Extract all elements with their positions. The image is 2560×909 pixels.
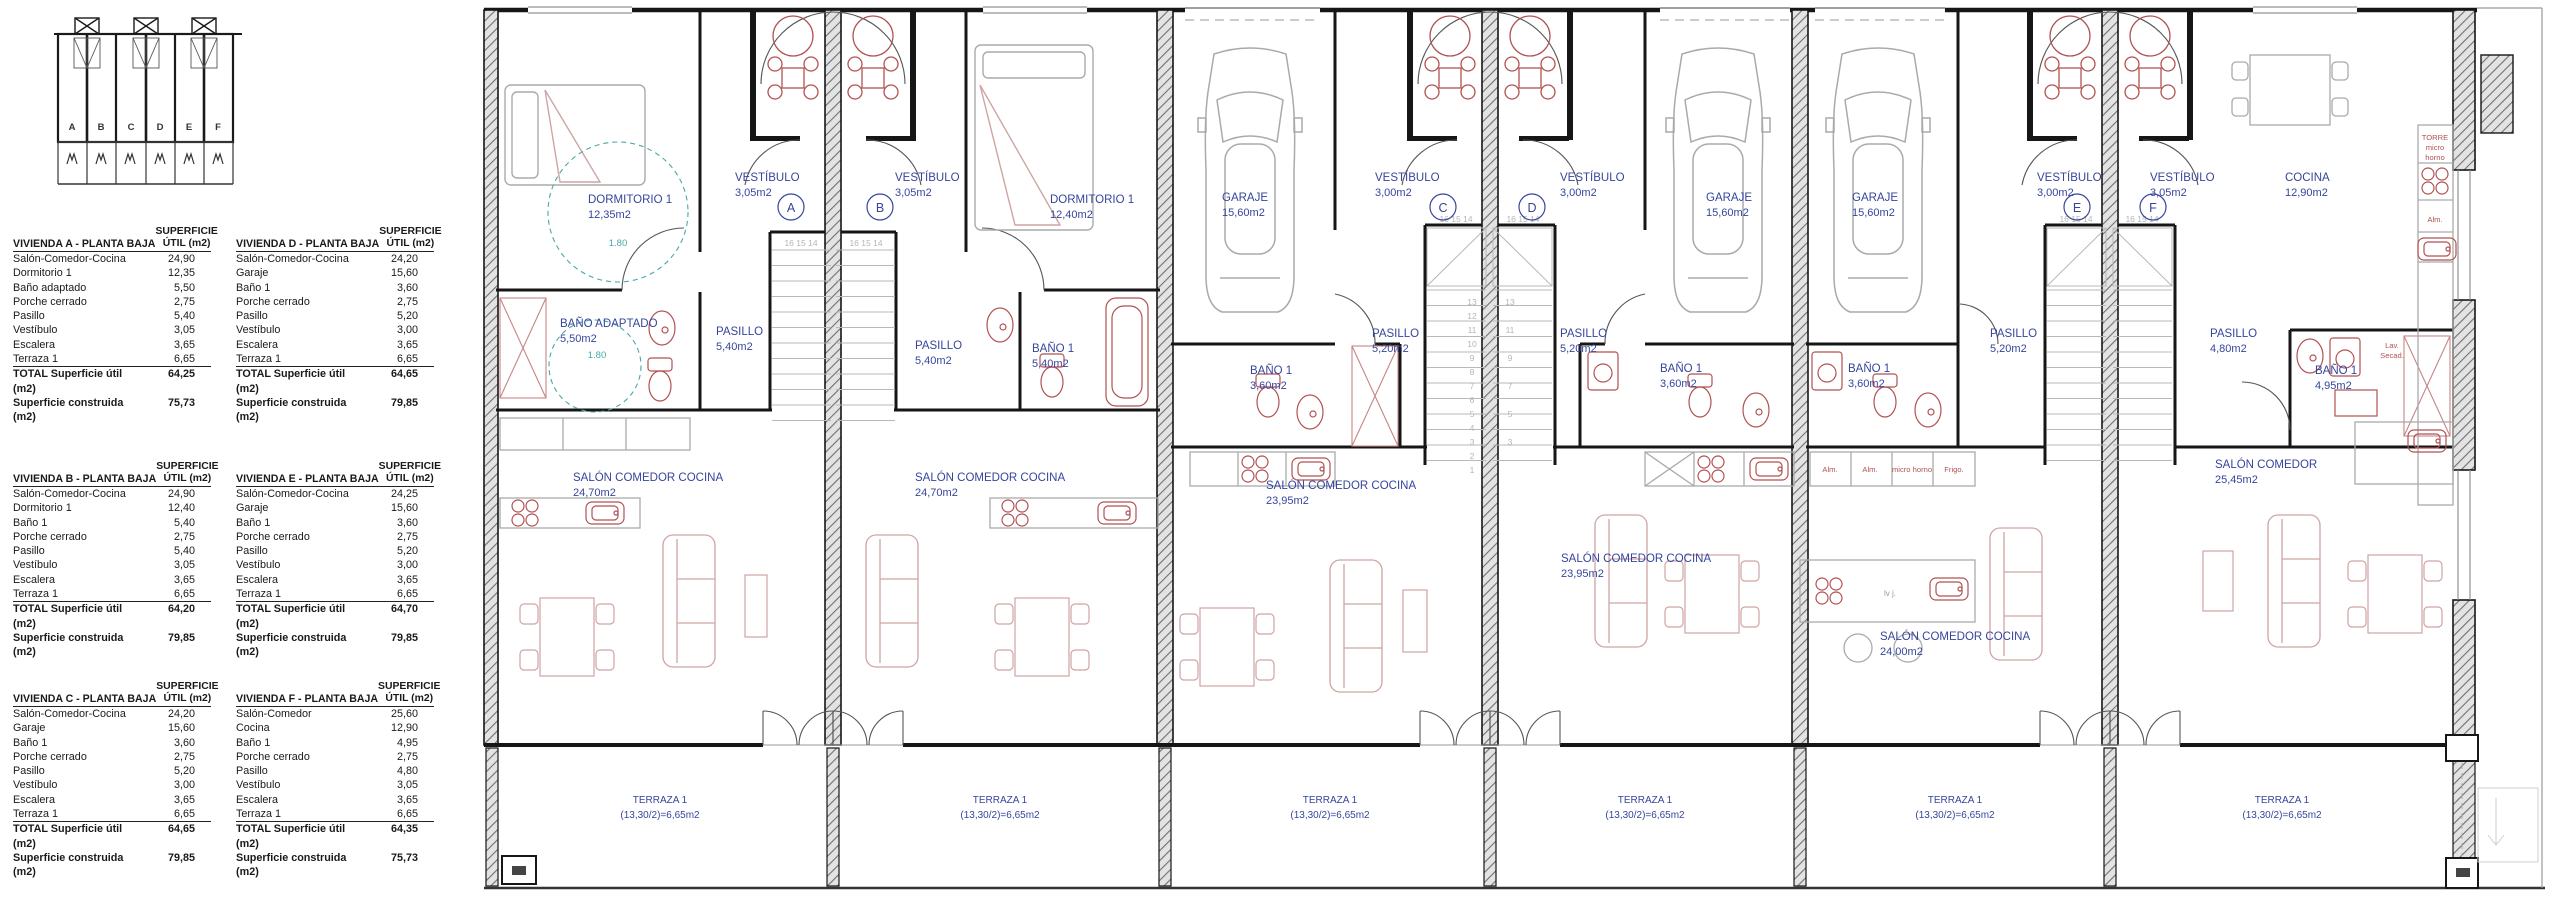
label-pasillo-b: PASILLO bbox=[915, 340, 962, 352]
dining-table-icon bbox=[995, 598, 1089, 676]
site-detail bbox=[2478, 788, 2538, 862]
label-dormitorio-b: DORMITORIO 1 bbox=[1050, 194, 1134, 206]
table-row: Baño 13,60 bbox=[236, 516, 434, 530]
svg-text:3,00m2: 3,00m2 bbox=[1375, 187, 1412, 199]
sofa-icon bbox=[1330, 560, 1382, 692]
table-built-row: Superficie construida (m2)79,85 bbox=[236, 396, 434, 425]
table-col-header: SUPERFICIEÚTIL (m2) bbox=[378, 681, 440, 705]
table-built-row: Superficie construida (m2)75,73 bbox=[13, 396, 211, 425]
svg-text:11: 11 bbox=[1506, 325, 1515, 335]
label-bano-d: BAÑO 1 bbox=[1660, 362, 1702, 375]
svg-text:13: 13 bbox=[1505, 297, 1515, 307]
svg-text:5,40m2: 5,40m2 bbox=[915, 355, 952, 367]
label-vestibulo-f: VESTÍBULO bbox=[2150, 171, 2215, 184]
unit-letter-a: A bbox=[787, 201, 796, 215]
table-row: Pasillo5,20 bbox=[13, 764, 211, 778]
label-bano-e: BAÑO 1 bbox=[1848, 362, 1890, 375]
svg-text:C: C bbox=[128, 122, 135, 133]
table-row: Garaje15,60 bbox=[236, 266, 434, 280]
label-dormitorio-a: DORMITORIO 1 bbox=[588, 194, 672, 206]
svg-text:8: 8 bbox=[1470, 367, 1475, 377]
floor-plan: 16 15 14 16 15 14 16 15 14 16 15 14 16 1… bbox=[480, 0, 2560, 909]
label-bano-a: BAÑO ADAPTADO bbox=[560, 317, 658, 330]
svg-text:(13,30/2)=6,65m2: (13,30/2)=6,65m2 bbox=[1605, 810, 1685, 821]
svg-text:(13,30/2)=6,65m2: (13,30/2)=6,65m2 bbox=[960, 810, 1040, 821]
kitchen-sink-icon bbox=[1750, 458, 1788, 480]
hob-icon bbox=[1002, 500, 1028, 526]
console-icon bbox=[2203, 551, 2233, 611]
table-row: Vestíbulo3,05 bbox=[236, 778, 434, 792]
washer-icon bbox=[1588, 352, 1618, 390]
table-row: Escalera3,65 bbox=[236, 573, 434, 587]
table-row: Salón-Comedor-Cocina24,20 bbox=[236, 252, 434, 266]
table-row: Salón-Comedor25,60 bbox=[236, 707, 434, 721]
table-title: VIVIENDA C - PLANTA BAJA bbox=[13, 693, 156, 705]
svg-text:3,60m2: 3,60m2 bbox=[1660, 378, 1697, 390]
table-col-header: SUPERFICIEÚTIL (m2) bbox=[379, 461, 441, 485]
svg-text:9: 9 bbox=[1470, 353, 1475, 363]
table-total-row: TOTAL Superficie útil (m2)64,70 bbox=[236, 601, 434, 631]
svg-text:16 15 14: 16 15 14 bbox=[1506, 214, 1539, 224]
area-table-b: VIVIENDA B - PLANTA BAJA SUPERFICIEÚTIL … bbox=[13, 461, 211, 660]
svg-text:Alm.: Alm. bbox=[1862, 465, 1877, 474]
keyplan-porch-boxes bbox=[75, 18, 216, 34]
table-row: Terraza 16,65 bbox=[236, 352, 434, 366]
unit-letter-e: E bbox=[2073, 201, 2081, 215]
shower-icon bbox=[1352, 346, 1398, 446]
label-pasillo-e: PASILLO bbox=[1990, 328, 2037, 340]
svg-text:9: 9 bbox=[1508, 353, 1513, 363]
svg-text:5,40m2: 5,40m2 bbox=[716, 341, 753, 353]
svg-text:(13,30/2)=6,65m2: (13,30/2)=6,65m2 bbox=[620, 810, 700, 821]
table-row: Porche cerrado2,75 bbox=[236, 295, 434, 309]
svg-text:11: 11 bbox=[1468, 325, 1477, 335]
hob-icon bbox=[1242, 456, 1268, 482]
table-row: Cocina12,90 bbox=[236, 721, 434, 735]
console-icon bbox=[1403, 590, 1427, 652]
label-terraza-a: TERRAZA 1 bbox=[633, 795, 688, 806]
svg-text:6: 6 bbox=[1470, 395, 1475, 405]
sofa-icon bbox=[2268, 515, 2320, 647]
hob-icon bbox=[1816, 578, 1842, 604]
svg-text:horno: horno bbox=[2425, 153, 2444, 162]
svg-text:16 15 14: 16 15 14 bbox=[2059, 214, 2092, 224]
table-row: Pasillo5,40 bbox=[13, 309, 211, 323]
svg-text:12: 12 bbox=[1467, 311, 1477, 321]
table-row: Porche cerrado2,75 bbox=[13, 295, 211, 309]
svg-text:micro: micro bbox=[2426, 143, 2445, 152]
fixtures-furniture bbox=[500, 45, 2456, 745]
floor-plan-sheet: A B C D E F VIVIENDA A - PLANTA BAJA SUP… bbox=[0, 0, 2560, 909]
table-row: Vestíbulo3,00 bbox=[236, 323, 434, 337]
svg-text:16 15 14: 16 15 14 bbox=[784, 238, 817, 248]
sink-icon bbox=[1915, 393, 1941, 427]
label-vestibulo-d: VESTÍBULO bbox=[1560, 171, 1625, 184]
table-row: Vestíbulo3,05 bbox=[13, 558, 211, 572]
label-salon-e: SALÓN COMEDOR COCINA bbox=[1880, 630, 2030, 643]
svg-text:5,40m2: 5,40m2 bbox=[1032, 358, 1069, 370]
label-vestibulo-a: VESTÍBULO bbox=[735, 171, 800, 184]
sink-icon bbox=[1297, 395, 1323, 429]
svg-text:Secad.: Secad. bbox=[2380, 351, 2404, 360]
table-row: Salón-Comedor-Cocina24,25 bbox=[236, 487, 434, 501]
svg-text:3: 3 bbox=[1470, 437, 1475, 447]
svg-text:16 15 14: 16 15 14 bbox=[849, 238, 882, 248]
svg-text:TORRE: TORRE bbox=[2422, 133, 2448, 142]
label-garaje-e: GARAJE bbox=[1852, 192, 1898, 204]
table-row: Vestíbulo3,05 bbox=[13, 323, 211, 337]
svg-text:23,95m2: 23,95m2 bbox=[1561, 568, 1604, 580]
svg-text:5,50m2: 5,50m2 bbox=[560, 333, 597, 345]
svg-text:12,35m2: 12,35m2 bbox=[588, 209, 631, 221]
entry-porches bbox=[745, 8, 2198, 185]
table-row: Dormitorio 112,35 bbox=[13, 266, 211, 280]
table-row: Salón-Comedor-Cocina24,90 bbox=[13, 487, 211, 501]
area-table-c: VIVIENDA C - PLANTA BAJA SUPERFICIEÚTIL … bbox=[13, 681, 211, 880]
table-row: Baño 13,60 bbox=[13, 736, 211, 750]
table-row: Porche cerrado2,75 bbox=[236, 530, 434, 544]
bed-icon bbox=[505, 85, 645, 185]
table-row: Garaje15,60 bbox=[236, 501, 434, 515]
svg-text:3,00m2: 3,00m2 bbox=[1560, 187, 1597, 199]
svg-text:16 15 14: 16 15 14 bbox=[2125, 214, 2158, 224]
svg-text:7: 7 bbox=[1470, 381, 1475, 391]
area-table-a: VIVIENDA A - PLANTA BAJA SUPERFICIEÚTIL … bbox=[13, 226, 211, 425]
table-title: VIVIENDA E - PLANTA BAJA bbox=[236, 473, 379, 485]
table-col-header: SUPERFICIEÚTIL (m2) bbox=[156, 681, 218, 705]
label-bano-b: BAÑO 1 bbox=[1032, 342, 1074, 355]
kitchen-sink-icon bbox=[1930, 578, 1968, 600]
svg-text:5: 5 bbox=[1508, 409, 1513, 419]
table-title: VIVIENDA B - PLANTA BAJA bbox=[13, 473, 156, 485]
room-door-arcs bbox=[622, 228, 2290, 430]
label-cocina-f: COCINA bbox=[2285, 172, 2330, 184]
mini-key-plan: A B C D E F bbox=[52, 12, 247, 202]
table-total-row: TOTAL Superficie útil (m2)64,65 bbox=[236, 366, 434, 396]
table-col-header: SUPERFICIEÚTIL (m2) bbox=[155, 226, 217, 250]
car-icon bbox=[1826, 48, 1930, 312]
svg-text:10: 10 bbox=[1467, 339, 1477, 349]
table-total-row: TOTAL Superficie útil (m2)64,65 bbox=[13, 821, 211, 851]
svg-text:D: D bbox=[157, 122, 164, 133]
vestibule-table-icon bbox=[1425, 16, 1475, 99]
table-row: Terraza 16,65 bbox=[13, 352, 211, 366]
toilet-icon bbox=[648, 358, 672, 401]
svg-text:1: 1 bbox=[1470, 465, 1475, 475]
label-bano-c: BAÑO 1 bbox=[1250, 364, 1292, 377]
hob-icon bbox=[512, 500, 538, 526]
kitchen-sink-icon bbox=[2408, 430, 2446, 452]
dim-label: 1.80 bbox=[588, 350, 607, 361]
shower-icon bbox=[2404, 336, 2450, 436]
bathtub-icon bbox=[1106, 298, 1148, 406]
table-row: Pasillo5,40 bbox=[13, 544, 211, 558]
unit-letter-c: C bbox=[1438, 201, 1447, 215]
table-row: Terraza 16,65 bbox=[236, 807, 434, 821]
label-vestibulo-b: VESTÍBULO bbox=[895, 171, 960, 184]
shower-icon bbox=[500, 298, 546, 398]
svg-text:E: E bbox=[186, 122, 192, 133]
table-col-header: SUPERFICIEÚTIL (m2) bbox=[379, 226, 441, 250]
table-row: Pasillo5,20 bbox=[236, 544, 434, 558]
svg-text:4: 4 bbox=[1470, 423, 1475, 433]
car-icon bbox=[1198, 48, 1302, 312]
table-title: VIVIENDA A - PLANTA BAJA bbox=[13, 238, 155, 250]
table-row: Porche cerrado2,75 bbox=[236, 750, 434, 764]
label-pasillo-c: PASILLO bbox=[1372, 328, 1419, 340]
svg-text:micro horno: micro horno bbox=[1892, 465, 1932, 474]
svg-text:Frigo.: Frigo. bbox=[1944, 465, 1963, 474]
sofa-icon bbox=[1595, 515, 1647, 647]
svg-text:12,90m2: 12,90m2 bbox=[2285, 187, 2328, 199]
table-built-row: Superficie construida (m2)75,73 bbox=[236, 851, 434, 880]
label-salon-a: SALÓN COMEDOR COCINA bbox=[573, 471, 723, 484]
table-row: Escalera3,65 bbox=[236, 793, 434, 807]
table-total-row: TOTAL Superficie útil (m2)64,35 bbox=[236, 821, 434, 851]
kitchen-sink-icon bbox=[586, 502, 624, 524]
table-row: Escalera3,65 bbox=[13, 338, 211, 352]
label-vestibulo-c: VESTÍBULO bbox=[1375, 171, 1440, 184]
svg-text:4,95m2: 4,95m2 bbox=[2315, 380, 2352, 392]
sink-icon bbox=[987, 308, 1013, 342]
sofa-icon bbox=[663, 535, 715, 667]
table-row: Porche cerrado2,75 bbox=[13, 750, 211, 764]
label-terraza-d: TERRAZA 1 bbox=[1618, 795, 1673, 806]
svg-text:3,60m2: 3,60m2 bbox=[1848, 378, 1885, 390]
svg-text:7: 7 bbox=[1508, 381, 1513, 391]
vestibule-table-icon bbox=[768, 16, 818, 99]
area-table-e: VIVIENDA E - PLANTA BAJA SUPERFICIEÚTIL … bbox=[236, 461, 434, 660]
table-row: Vestíbulo3,00 bbox=[13, 778, 211, 792]
svg-text:(13,30/2)=6,65m2: (13,30/2)=6,65m2 bbox=[1915, 810, 1995, 821]
area-table-f: VIVIENDA F - PLANTA BAJA SUPERFICIEÚTIL … bbox=[236, 681, 434, 880]
label-garaje-d: GARAJE bbox=[1706, 192, 1752, 204]
table-built-row: Superficie construida (m2)79,85 bbox=[13, 631, 211, 660]
table-row: Pasillo5,20 bbox=[236, 309, 434, 323]
kitchen-sink-icon bbox=[1292, 458, 1330, 480]
table-row: Baño 13,60 bbox=[236, 281, 434, 295]
label-salon-f: SALÓN COMEDOR bbox=[2215, 458, 2317, 471]
svg-text:A: A bbox=[69, 122, 76, 133]
terrace-door-icon bbox=[2110, 711, 2180, 745]
svg-text:5,20m2: 5,20m2 bbox=[1560, 343, 1597, 355]
svg-text:lv j.: lv j. bbox=[1884, 589, 1896, 598]
svg-text:B: B bbox=[98, 122, 105, 133]
table-row: Terraza 16,65 bbox=[236, 587, 434, 601]
terrace-door-icon bbox=[833, 711, 903, 745]
kitchen-sink-icon bbox=[2418, 238, 2456, 260]
svg-text:3,05m2: 3,05m2 bbox=[735, 187, 772, 199]
svg-text:2: 2 bbox=[1470, 451, 1475, 461]
table-total-row: TOTAL Superficie útil (m2)64,25 bbox=[13, 366, 211, 396]
vestibule-table-icon bbox=[2045, 16, 2095, 99]
table-row: Pasillo4,80 bbox=[236, 764, 434, 778]
svg-text:3: 3 bbox=[1508, 437, 1513, 447]
svg-text:25,45m2: 25,45m2 bbox=[2215, 474, 2258, 486]
vestibule-table-icon bbox=[848, 16, 898, 99]
svg-text:(13,30/2)=6,65m2: (13,30/2)=6,65m2 bbox=[2242, 810, 2322, 821]
label-terraza-c: TERRAZA 1 bbox=[1303, 795, 1358, 806]
console-icon bbox=[745, 575, 767, 637]
svg-text:3,05m2: 3,05m2 bbox=[2150, 187, 2187, 199]
svg-text:3,60m2: 3,60m2 bbox=[1250, 380, 1287, 392]
table-row: Terraza 16,65 bbox=[13, 587, 211, 601]
svg-text:5,20m2: 5,20m2 bbox=[1990, 343, 2027, 355]
label-pasillo-d: PASILLO bbox=[1560, 328, 1607, 340]
svg-text:16 15 14: 16 15 14 bbox=[1439, 214, 1472, 224]
vestibule-table-icon bbox=[1505, 16, 1555, 99]
table-title: VIVIENDA F - PLANTA BAJA bbox=[236, 693, 378, 705]
unit-letter-f: F bbox=[2149, 201, 2157, 215]
svg-text:15,60m2: 15,60m2 bbox=[1222, 207, 1265, 219]
svg-text:15,60m2: 15,60m2 bbox=[1706, 207, 1749, 219]
svg-text:4,80m2: 4,80m2 bbox=[2210, 343, 2247, 355]
stairs: 16 15 14 16 15 14 16 15 14 16 15 14 16 1… bbox=[772, 214, 2172, 475]
hob-icon bbox=[2422, 168, 2448, 194]
sofa-icon bbox=[866, 535, 918, 667]
svg-text:Alm.: Alm. bbox=[1822, 465, 1837, 474]
car-icon bbox=[1666, 48, 1770, 312]
table-row: Terraza 16,65 bbox=[13, 807, 211, 821]
dim-label: 1.80 bbox=[609, 238, 628, 249]
table-row: Baño 15,40 bbox=[13, 516, 211, 530]
label-terraza-b: TERRAZA 1 bbox=[973, 795, 1028, 806]
dining-table-icon bbox=[2348, 555, 2442, 633]
svg-text:24,00m2: 24,00m2 bbox=[1880, 646, 1923, 658]
svg-text:Alm.: Alm. bbox=[2427, 215, 2442, 224]
table-row: Garaje15,60 bbox=[13, 721, 211, 735]
label-vestibulo-e: VESTÍBULO bbox=[2037, 171, 2102, 184]
washer-icon bbox=[1812, 352, 1842, 390]
kitchen-sink-icon bbox=[1098, 502, 1136, 524]
table-row: Salón-Comedor-Cocina24,20 bbox=[13, 707, 211, 721]
svg-text:12,40m2: 12,40m2 bbox=[1050, 209, 1093, 221]
svg-text:24,70m2: 24,70m2 bbox=[915, 487, 958, 499]
table-row: Escalera3,65 bbox=[13, 793, 211, 807]
table-row: Dormitorio 112,40 bbox=[13, 501, 211, 515]
label-salon-d: SALÓN COMEDOR COCINA bbox=[1561, 552, 1711, 565]
table-row: Baño adaptado5,50 bbox=[13, 281, 211, 295]
table-row: Porche cerrado2,75 bbox=[13, 530, 211, 544]
table-total-row: TOTAL Superficie útil (m2)64,20 bbox=[13, 601, 211, 631]
sink-icon bbox=[1743, 393, 1769, 427]
terrace-door-icon bbox=[1490, 711, 1560, 745]
label-salon-b: SALÓN COMEDOR COCINA bbox=[915, 471, 1065, 484]
dining-table-icon bbox=[1180, 608, 1274, 686]
svg-text:15,60m2: 15,60m2 bbox=[1852, 207, 1895, 219]
dining-table-icon bbox=[520, 598, 614, 676]
svg-text:24,70m2: 24,70m2 bbox=[573, 487, 616, 499]
svg-text:5,20m2: 5,20m2 bbox=[1372, 343, 1409, 355]
label-terraza-f: TERRAZA 1 bbox=[2255, 795, 2310, 806]
table-row: Escalera3,65 bbox=[13, 573, 211, 587]
table-built-row: Superficie construida (m2)79,85 bbox=[236, 631, 434, 660]
room-labels: DORMITORIO 1 12,35m2 VESTÍBULO 3,05m2 BA… bbox=[560, 133, 2448, 821]
laundry-bench-icon bbox=[2335, 390, 2377, 416]
terrace-door-icon bbox=[2040, 711, 2110, 745]
label-pasillo-a: PASILLO bbox=[716, 326, 763, 338]
svg-text:23,95m2: 23,95m2 bbox=[1266, 495, 1309, 507]
table-row: Baño 14,95 bbox=[236, 736, 434, 750]
unit-letter-d: D bbox=[1527, 201, 1536, 215]
svg-text:(13,30/2)=6,65m2: (13,30/2)=6,65m2 bbox=[1290, 810, 1370, 821]
table-title: VIVIENDA D - PLANTA BAJA bbox=[236, 238, 379, 250]
svg-text:13: 13 bbox=[1467, 297, 1477, 307]
svg-text:Lav.: Lav. bbox=[2385, 341, 2399, 350]
table-row: Vestíbulo3,00 bbox=[236, 558, 434, 572]
hob-icon bbox=[1698, 456, 1724, 482]
table-row: Escalera3,65 bbox=[236, 338, 434, 352]
svg-text:5: 5 bbox=[1470, 409, 1475, 419]
svg-text:F: F bbox=[215, 122, 221, 133]
label-garaje-c: GARAJE bbox=[1222, 192, 1268, 204]
table-col-header: SUPERFICIEÚTIL (m2) bbox=[156, 461, 218, 485]
label-salon-c: SALÓN COMEDOR COCINA bbox=[1266, 479, 1416, 492]
label-terraza-e: TERRAZA 1 bbox=[1928, 795, 1983, 806]
label-bano-f: BAÑO 1 bbox=[2315, 364, 2357, 377]
dining-table-icon bbox=[1665, 555, 1759, 633]
label-pasillo-f: PASILLO bbox=[2210, 328, 2257, 340]
table-built-row: Superficie construida (m2)79,85 bbox=[13, 851, 211, 880]
terrace-door-icon bbox=[1420, 711, 1490, 745]
terrace-door-icon bbox=[763, 711, 833, 745]
unit-letter-b: B bbox=[876, 201, 884, 215]
vestibule-table-icon bbox=[2125, 16, 2175, 99]
area-table-d: VIVIENDA D - PLANTA BAJA SUPERFICIEÚTIL … bbox=[236, 226, 434, 425]
svg-text:3,05m2: 3,05m2 bbox=[895, 187, 932, 199]
table-row: Salón-Comedor-Cocina24,90 bbox=[13, 252, 211, 266]
